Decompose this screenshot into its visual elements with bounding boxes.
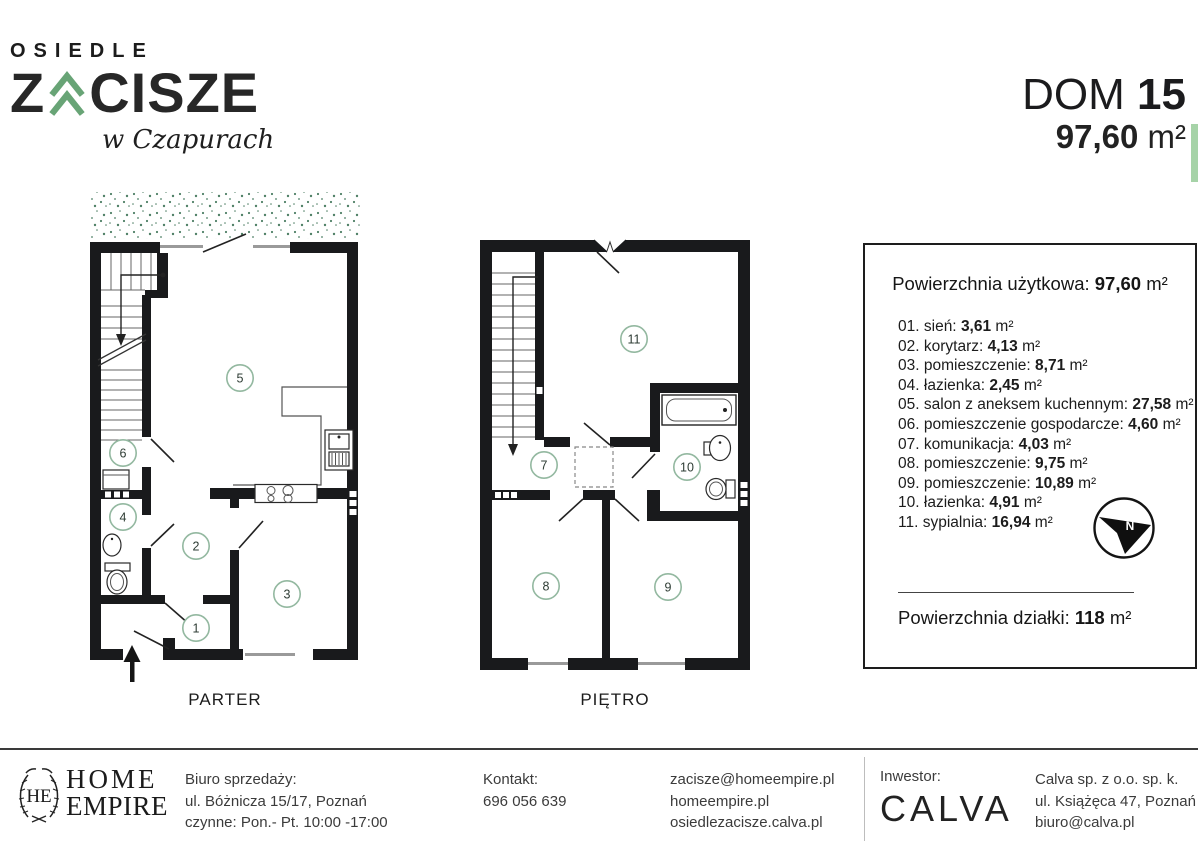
double-chevron-icon [47,70,87,118]
stove-icon [255,485,317,503]
room-number-11: 11 [628,333,641,347]
plot-area-label: Powierzchnia działki: [898,607,1070,628]
investor-email: biuro@calva.pl [1035,812,1196,834]
investor-block: Inwestor: CALVA [880,768,1013,830]
web-links: zacisze@homeempire.pl homeempire.pl osie… [670,769,834,834]
parter-label: PARTER [85,690,365,710]
room-list-item: 03. pomieszczenie: 8,71 m² [898,356,1195,376]
unit-number: 15 [1137,70,1186,119]
room-list-item: 05. salon z aneksem kuchennym: 27,58 m² [898,395,1195,415]
room-list-item: 07. komunikacja: 4,03 m² [898,435,1195,455]
bathroom-sink-icon [704,436,731,461]
room-number-10: 10 [680,461,694,475]
staircase-down [98,253,166,440]
bathtub-icon [662,395,736,425]
usable-area-title: Powierzchnia użytkowa: 97,60 m² [865,273,1195,295]
room-number-4: 4 [120,511,127,525]
pietro-label: PIĘTRO [475,690,755,710]
compass-n-letter: N [1126,519,1135,533]
home-empire-wreath-logo: HE [12,763,66,827]
room-number-2: 2 [193,540,200,554]
room-number-5: 5 [237,372,244,386]
office-address: ul. Bóżnicza 15/17, Poznań [185,791,388,813]
stair-arrow-head [508,444,518,456]
room-list-item: 01. sień: 3,61 m² [898,317,1195,337]
pietro-room-numbers: 11 7 10 8 9 [531,326,700,600]
room-list-item: 08. pomieszczenie: 9,75 m² [898,454,1195,474]
usable-area-value: 97,60 [1095,273,1141,294]
logo-word-zacisze: Z CISZE [10,65,274,121]
sales-office-info: Biuro sprzedaży: ul. Bóżnicza 15/17, Poz… [185,769,388,834]
unit-header: DOM 15 97,60 m² [1022,72,1186,156]
room-list-item: 09. pomieszczenie: 10,89 m² [898,474,1195,494]
office-title: Biuro sprzedaży: [185,769,388,791]
investor-address: ul. Książęca 47, Poznań [1035,791,1196,813]
plot-area-line: Powierzchnia działki: 118 m² [898,607,1131,629]
room-list-item: 04. łazienka: 2,45 m² [898,376,1195,396]
room-number-9: 9 [665,581,672,595]
room-number-6: 6 [120,447,127,461]
contact-label: Kontakt: [483,769,566,791]
chimney-shaft-dashed [575,447,613,487]
unit-area-value: 97,60 [1056,118,1139,155]
unit-title: DOM 15 [1022,72,1186,118]
floorplan-flyer: { "header": { "logo": { "top": "OSIEDLE"… [0,0,1198,847]
room-number-7: 7 [541,459,548,473]
toilet-icon [105,563,130,594]
bathroom-sink-icon [103,534,121,556]
footer-divider-line [0,748,1198,750]
green-accent-bar [1191,124,1198,182]
staircase-down [492,273,538,456]
footer-vertical-divider [864,757,865,841]
washing-machine-icon [103,470,129,489]
toilet-icon [706,479,735,500]
pietro-floorplan: 11 7 10 8 9 [475,237,755,682]
unit-area-unit: m² [1148,118,1186,155]
room-number-1: 1 [193,622,200,636]
he-monogram: HE [26,786,51,807]
room-list-item: 02. korytarz: 4,13 m² [898,337,1195,357]
home-empire-name: HOME EMPIRE [66,766,168,820]
usable-area-unit: m² [1146,273,1168,294]
investor-name: CALVA [880,788,1013,830]
website-osiedlezacisze: osiedlezacisze.calva.pl [670,812,834,834]
investor-details: Calva sp. z o.o. sp. k. ul. Książęca 47,… [1035,769,1196,834]
email-address: zacisze@homeempire.pl [670,769,834,791]
entrance-arrow-icon [124,645,141,682]
logo-letter-z: Z [10,65,45,121]
unit-area: 97,60 m² [1022,118,1186,156]
estate-logo: OSIEDLE Z CISZE w Czapurach [10,40,274,155]
logo-letters-cisze: CISZE [89,65,259,121]
office-hours: czynne: Pon.- Pt. 10:00 -17:00 [185,812,388,834]
stair-arrow-head [116,334,126,346]
area-info-panel: Powierzchnia użytkowa: 97,60 m² 01. sień… [863,243,1197,669]
plot-area-unit: m² [1110,607,1132,628]
logo-word-osiedle: OSIEDLE [10,40,274,63]
investor-company: Calva sp. z o.o. sp. k. [1035,769,1196,791]
unit-label: DOM [1022,70,1125,119]
home-empire-line1: HOME [66,766,168,793]
terrace-dots [90,192,360,239]
plot-area-value: 118 [1075,607,1105,628]
home-empire-line2: EMPIRE [66,793,168,820]
panel-divider [898,592,1134,593]
investor-label: Inwestor: [880,768,1013,785]
room-number-8: 8 [543,580,550,594]
contact-info: Kontakt: 696 056 639 [483,769,566,812]
north-compass-icon: N [1091,495,1157,561]
logo-script-subtitle: w Czapurach [102,125,274,155]
room-list-item: 06. pomieszczenie gospodarcze: 4,60 m² [898,415,1195,435]
website-homeempire: homeempire.pl [670,791,834,813]
usable-area-label: Powierzchnia użytkowa: [892,273,1089,294]
room-number-3: 3 [284,588,291,602]
kitchen-sink-icon [325,430,353,470]
contact-phone: 696 056 639 [483,791,566,813]
parter-floorplan: 5 6 4 2 3 1 [85,190,365,690]
